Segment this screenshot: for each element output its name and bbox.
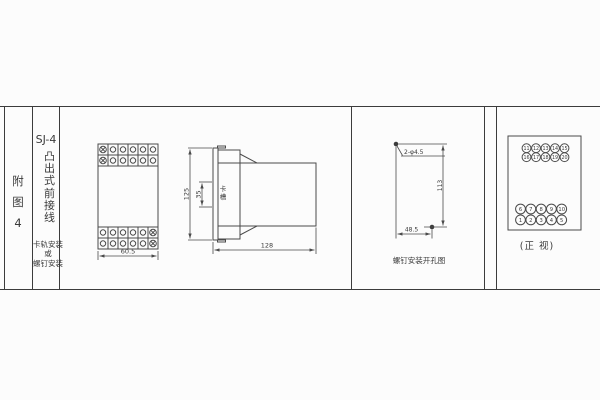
terminal-number: 18: [542, 155, 548, 161]
drill-vertical-dim-label: 113: [437, 180, 444, 192]
terminal-number: 9: [550, 207, 553, 213]
mounting-note-line1: 卡轨安装: [33, 240, 63, 249]
terminal-number: 10: [558, 207, 565, 213]
terminal-number: 13: [542, 146, 548, 152]
side-height-dim-label: 125: [183, 188, 191, 200]
table-grid: [0, 107, 600, 290]
drill-horizontal-dim-label: 48.5: [405, 227, 419, 234]
terminal-number: 14: [552, 146, 558, 152]
relay-body-front: [98, 166, 158, 227]
terminal-number: 12: [533, 146, 539, 152]
terminal-number: 7: [529, 207, 532, 213]
terminal-number: 11: [523, 146, 529, 152]
front-view-drawing: [98, 144, 158, 260]
mounting-note-line2: 或: [33, 249, 63, 258]
terminal-number: 4: [550, 218, 554, 224]
manual-page: 60.5 125 35 128: [0, 0, 600, 400]
terminal-number: 20: [561, 155, 567, 161]
relay-body-side: [240, 163, 316, 226]
side-slot-dim-label: 35: [195, 190, 203, 198]
mounting-note: 卡轨安装 或 螺钉安装: [33, 240, 63, 268]
side-depth-dim-label: 128: [261, 242, 273, 250]
front-width-dim-label: 60.5: [121, 248, 135, 256]
terminal-view-caption: (正 视): [512, 238, 562, 252]
terminal-number: 17: [533, 155, 539, 161]
rail-slot-label: 卡槽: [219, 186, 227, 202]
drill-hole-size-label: 2-φ4.5: [404, 149, 424, 156]
model-title: SJ-4: [31, 133, 61, 146]
figure-number-label: 附图4: [10, 171, 26, 234]
front-flange-side: [213, 148, 218, 240]
side-view-drawing: [188, 146, 316, 254]
drill-hole-top: [394, 142, 399, 147]
terminal-number: 8: [539, 207, 542, 213]
model-subtitle: 凸出式前接线: [43, 151, 56, 224]
terminal-number: 2: [529, 218, 532, 224]
terminal-number: 6: [519, 207, 522, 213]
technical-drawing-canvas: 60.5 125 35 128: [0, 0, 600, 400]
terminal-number: 19: [552, 155, 558, 161]
terminal-number: 5: [560, 218, 563, 224]
terminal-number: 1: [519, 218, 522, 224]
terminal-number: 15: [561, 146, 567, 152]
terminal-number: 3: [539, 218, 542, 224]
mounting-note-line3: 螺钉安装: [33, 259, 63, 268]
terminal-number: 16: [523, 155, 529, 161]
drill-diagram-caption: 螺钉安装开孔图: [389, 255, 449, 266]
